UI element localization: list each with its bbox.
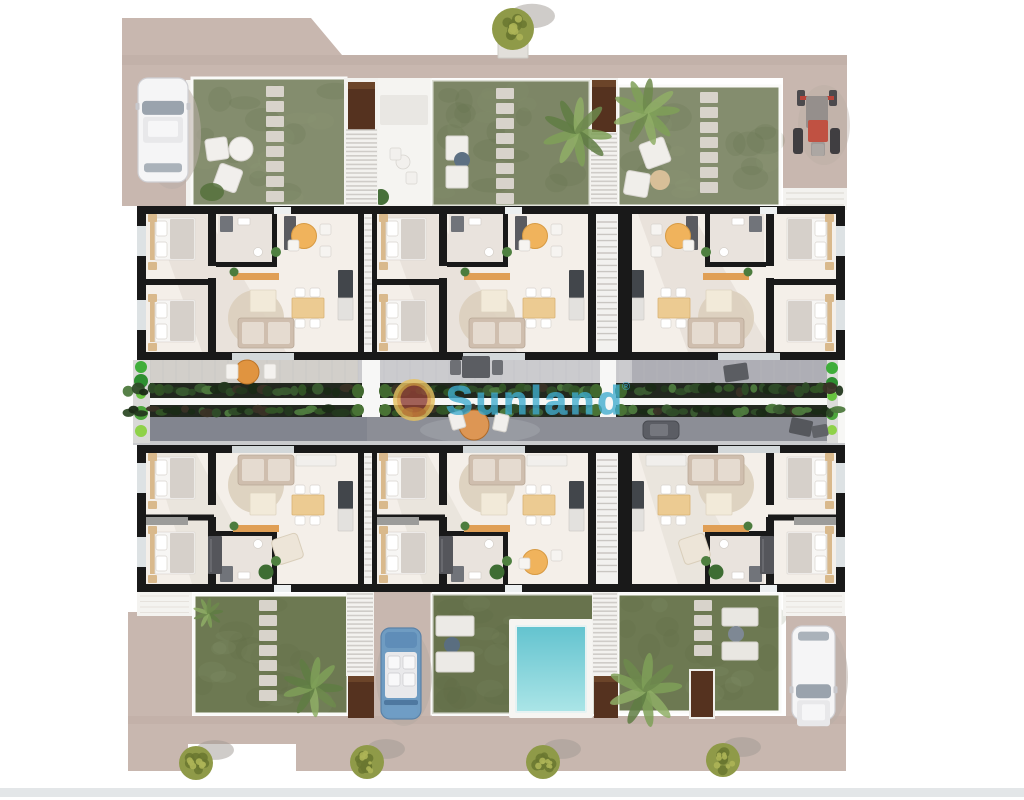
svg-text:®: ® bbox=[622, 381, 630, 393]
svg-text:Sunland: Sunland bbox=[446, 379, 625, 423]
